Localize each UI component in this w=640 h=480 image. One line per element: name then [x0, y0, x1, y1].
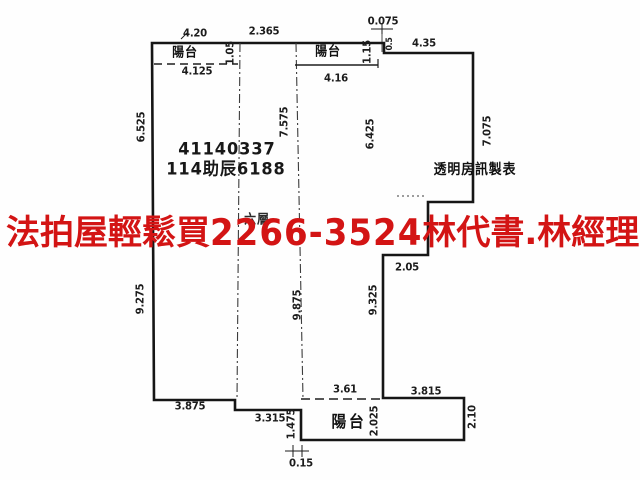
dim-balcony-tl-depth: 1.05	[225, 41, 236, 65]
dim-balcony-b-top: 3.61	[333, 384, 357, 395]
dim-mid-lower-height: 9.875	[292, 290, 303, 321]
dim-bottom-step-height: 1.475	[286, 409, 297, 440]
dim-mid-upper-height: 7.575	[279, 107, 290, 138]
interior-centerline-left	[237, 43, 240, 400]
interior-centerline-right	[296, 43, 303, 399]
dim-bottom-left-width: 3.875	[175, 401, 206, 412]
case-reference: 114助辰6188	[166, 162, 286, 179]
case-number: 41140337	[178, 142, 276, 159]
dim-left-upper-height: 6.525	[136, 112, 147, 143]
dim-right-step-width: 2.05	[395, 262, 419, 273]
dim-right-lower-height: 9.325	[368, 285, 379, 316]
floorplan-scan: 4.20 2.365 0.075 4.35 4.125 4.16 2.05 3.…	[0, 0, 640, 480]
source-label: 透明房訊製表	[434, 163, 517, 177]
floorplan-drawing	[0, 0, 640, 480]
balcony-label-top-right: 陽台	[315, 46, 341, 59]
dim-balcony-b-right: 3.815	[411, 386, 442, 397]
dim-far-right-height: 7.075	[482, 116, 493, 147]
building-outline	[152, 43, 473, 440]
dim-top-mid-width: 2.365	[249, 26, 280, 37]
dim-bottom-offset: 0.15	[289, 458, 313, 469]
dim-bottom-mid-width: 3.315	[255, 413, 286, 424]
dim-balcony-tl-width: 4.20	[183, 28, 207, 39]
balcony-label-bottom: 陽台	[332, 414, 367, 430]
dim-right-upper-height: 6.425	[365, 119, 376, 150]
dim-balcony-tl-inner: 4.125	[182, 66, 213, 77]
dim-balcony-b-depth: 2.025	[369, 406, 380, 437]
dim-top-offset: 0.075	[368, 16, 399, 27]
dim-left-lower-height: 9.275	[135, 284, 146, 315]
dim-top-step-height: 0.5	[386, 37, 395, 50]
dim-balcony-b-right-depth: 2.10	[467, 405, 478, 429]
dim-top-right-width: 4.35	[412, 38, 436, 49]
balcony-label-top-left: 陽台	[172, 47, 198, 60]
floor-label: 六層	[244, 214, 270, 227]
dim-balcony-tr-inner: 4.16	[324, 73, 348, 84]
dim-balcony-tr-depth: 1.15	[362, 40, 373, 64]
